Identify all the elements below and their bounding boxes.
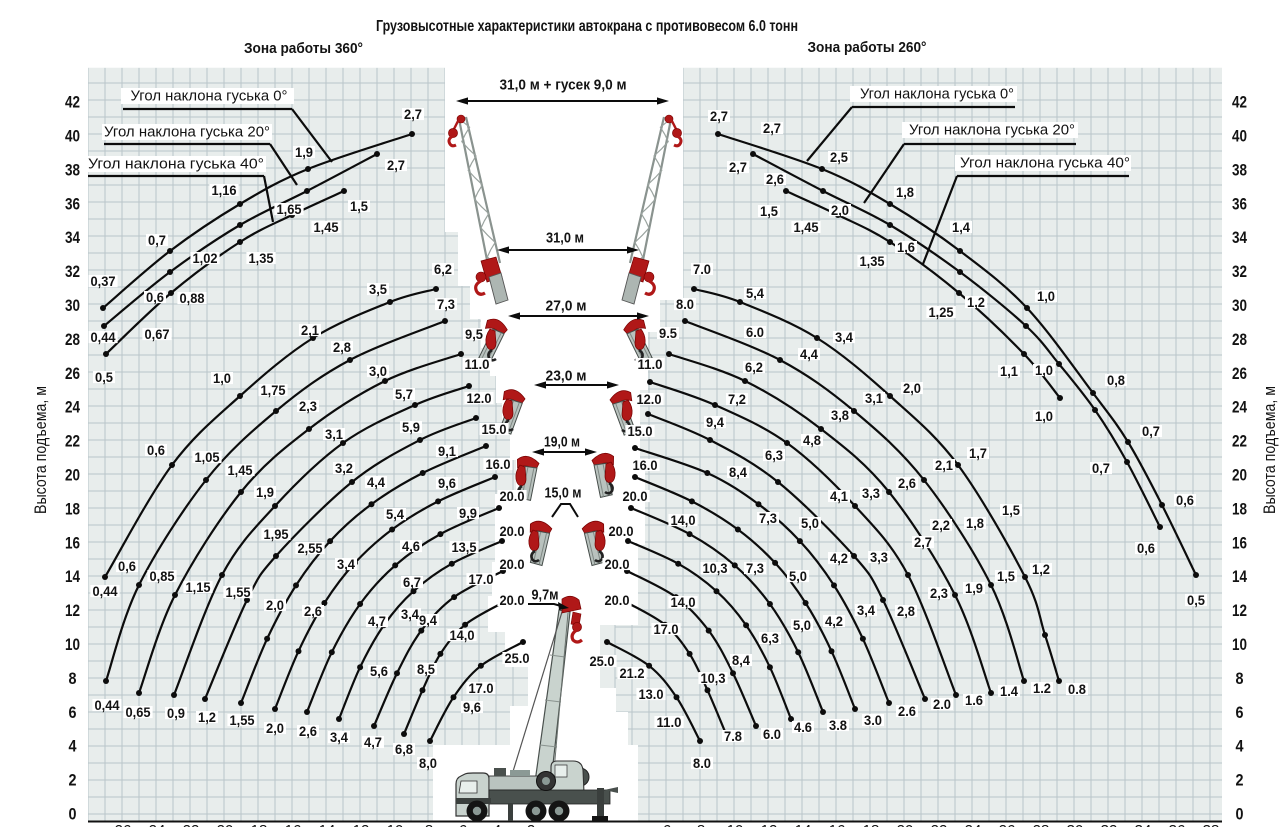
svg-text:20.0: 20.0 xyxy=(623,488,648,504)
svg-text:2,7: 2,7 xyxy=(729,159,747,175)
svg-text:8.0: 8.0 xyxy=(693,755,711,771)
svg-text:9.5: 9.5 xyxy=(659,325,677,341)
svg-text:5,9: 5,9 xyxy=(402,419,420,435)
svg-text:1.4: 1.4 xyxy=(1000,683,1018,699)
svg-text:11.0: 11.0 xyxy=(465,356,490,372)
svg-text:21.2: 21.2 xyxy=(620,665,645,681)
svg-text:15.0: 15.0 xyxy=(628,423,653,439)
svg-text:8,4: 8,4 xyxy=(729,464,747,480)
svg-text:1,2: 1,2 xyxy=(967,294,985,310)
svg-text:1,25: 1,25 xyxy=(929,304,954,320)
svg-text:2,3: 2,3 xyxy=(299,398,317,414)
svg-text:5,4: 5,4 xyxy=(386,506,404,522)
svg-text:32: 32 xyxy=(65,262,80,281)
svg-text:0,88: 0,88 xyxy=(180,290,205,306)
svg-text:Угол наклона гуська 0°: Угол наклона гуська 0° xyxy=(131,88,288,105)
svg-text:4,4: 4,4 xyxy=(367,474,385,490)
svg-text:24: 24 xyxy=(65,398,80,417)
svg-text:12: 12 xyxy=(761,822,778,827)
svg-text:20: 20 xyxy=(65,466,80,485)
svg-text:3,1: 3,1 xyxy=(865,390,883,406)
svg-text:1.6: 1.6 xyxy=(965,692,983,708)
svg-text:32: 32 xyxy=(1101,822,1118,827)
svg-text:20.0: 20.0 xyxy=(500,592,525,608)
svg-text:2,7: 2,7 xyxy=(387,157,405,173)
svg-text:8,0: 8,0 xyxy=(419,755,437,771)
svg-text:1,5: 1,5 xyxy=(760,203,778,219)
svg-text:0,37: 0,37 xyxy=(91,273,116,289)
svg-text:0,5: 0,5 xyxy=(1187,592,1205,608)
svg-text:0,6: 0,6 xyxy=(1176,492,1194,508)
svg-text:20.0: 20.0 xyxy=(500,523,525,539)
svg-text:10: 10 xyxy=(65,635,80,654)
svg-text:2,6: 2,6 xyxy=(304,603,322,619)
svg-text:23,0 м: 23,0 м xyxy=(546,368,587,385)
svg-text:36: 36 xyxy=(1169,822,1186,827)
svg-text:0,44: 0,44 xyxy=(95,697,120,713)
svg-text:6.0: 6.0 xyxy=(763,726,781,742)
svg-text:20.0: 20.0 xyxy=(609,523,634,539)
svg-text:2: 2 xyxy=(1236,771,1244,790)
svg-text:0,44: 0,44 xyxy=(93,583,118,599)
svg-text:8: 8 xyxy=(69,669,77,688)
svg-text:1,55: 1,55 xyxy=(230,712,255,728)
svg-text:11.0: 11.0 xyxy=(657,714,682,730)
svg-text:1,0: 1,0 xyxy=(213,370,231,386)
svg-text:0,7: 0,7 xyxy=(1092,460,1110,476)
svg-text:Угол наклона гуська 40°: Угол наклона гуська 40° xyxy=(88,156,264,173)
svg-text:5,0: 5,0 xyxy=(789,568,807,584)
svg-text:Высота подъема, м: Высота подъема, м xyxy=(32,386,50,514)
svg-text:5,0: 5,0 xyxy=(801,515,819,531)
svg-text:9,6: 9,6 xyxy=(438,475,456,491)
svg-text:10,3: 10,3 xyxy=(703,560,728,576)
svg-text:0,65: 0,65 xyxy=(126,704,151,720)
svg-text:1,5: 1,5 xyxy=(350,198,368,214)
svg-text:12.0: 12.0 xyxy=(637,391,662,407)
svg-text:28: 28 xyxy=(1033,822,1050,827)
svg-text:20.0: 20.0 xyxy=(500,556,525,572)
svg-text:40: 40 xyxy=(65,127,80,146)
svg-text:1,9: 1,9 xyxy=(965,580,983,596)
svg-text:3,4: 3,4 xyxy=(835,329,853,345)
svg-text:1,15: 1,15 xyxy=(186,579,211,595)
svg-text:0,67: 0,67 xyxy=(145,326,170,342)
svg-text:10: 10 xyxy=(387,822,404,827)
svg-text:3,1: 3,1 xyxy=(325,426,343,442)
svg-text:2,7: 2,7 xyxy=(914,534,932,550)
svg-text:24: 24 xyxy=(965,822,982,827)
svg-text:1,1: 1,1 xyxy=(1000,363,1018,379)
svg-text:10: 10 xyxy=(1232,635,1247,654)
svg-text:34: 34 xyxy=(1232,228,1247,247)
svg-text:1,0: 1,0 xyxy=(1035,362,1053,378)
svg-text:5,6: 5,6 xyxy=(370,663,388,679)
svg-text:10,3: 10,3 xyxy=(701,670,726,686)
svg-text:1,45: 1,45 xyxy=(314,219,339,235)
svg-text:6,8: 6,8 xyxy=(395,741,413,757)
svg-text:1,55: 1,55 xyxy=(226,584,251,600)
svg-text:38: 38 xyxy=(65,160,80,179)
svg-text:3,5: 3,5 xyxy=(369,281,387,297)
svg-text:9,6: 9,6 xyxy=(463,699,481,715)
svg-text:2,6: 2,6 xyxy=(299,723,317,739)
svg-text:3,3: 3,3 xyxy=(862,485,880,501)
svg-text:0,6: 0,6 xyxy=(146,289,164,305)
svg-text:9,9: 9,9 xyxy=(459,505,477,521)
svg-text:20: 20 xyxy=(217,822,234,827)
svg-text:24: 24 xyxy=(149,822,166,827)
svg-text:3,4: 3,4 xyxy=(857,602,875,618)
svg-text:1,5: 1,5 xyxy=(1002,502,1020,518)
svg-text:4.6: 4.6 xyxy=(794,719,812,735)
svg-text:6,7: 6,7 xyxy=(403,574,421,590)
svg-text:22: 22 xyxy=(183,822,200,827)
svg-text:2,7: 2,7 xyxy=(763,120,781,136)
svg-text:7.8: 7.8 xyxy=(724,728,742,744)
svg-text:14,0: 14,0 xyxy=(450,627,475,643)
svg-text:0: 0 xyxy=(1236,805,1244,824)
svg-text:2,0: 2,0 xyxy=(903,380,921,396)
svg-text:26: 26 xyxy=(115,822,132,827)
svg-text:2,0: 2,0 xyxy=(266,597,284,613)
svg-text:0: 0 xyxy=(69,805,77,824)
svg-text:9,4: 9,4 xyxy=(706,414,724,430)
svg-text:Грузовысотные характеристики а: Грузовысотные характеристики автокрана с… xyxy=(376,18,798,35)
svg-text:4,7: 4,7 xyxy=(364,734,382,750)
svg-text:2: 2 xyxy=(527,822,535,827)
svg-text:1,8: 1,8 xyxy=(896,184,914,200)
svg-text:1,2: 1,2 xyxy=(1032,561,1050,577)
svg-text:8: 8 xyxy=(425,822,433,827)
svg-text:16.0: 16.0 xyxy=(486,456,511,472)
svg-text:9,1: 9,1 xyxy=(438,443,456,459)
svg-text:30: 30 xyxy=(1067,822,1084,827)
svg-text:1,45: 1,45 xyxy=(228,462,253,478)
svg-text:42: 42 xyxy=(65,93,80,112)
svg-text:3,0: 3,0 xyxy=(369,363,387,379)
svg-text:16: 16 xyxy=(65,533,80,552)
svg-text:6: 6 xyxy=(459,822,467,827)
svg-text:3,4: 3,4 xyxy=(337,556,355,572)
svg-text:34: 34 xyxy=(1135,822,1152,827)
svg-text:2.0: 2.0 xyxy=(933,696,951,712)
svg-text:28: 28 xyxy=(65,330,80,349)
svg-text:14: 14 xyxy=(1232,567,1247,586)
svg-text:24: 24 xyxy=(1232,398,1247,417)
svg-text:1,4: 1,4 xyxy=(952,219,970,235)
svg-text:12.0: 12.0 xyxy=(467,390,492,406)
svg-text:20: 20 xyxy=(1232,466,1247,485)
svg-text:6,2: 6,2 xyxy=(434,261,452,277)
svg-text:3.0: 3.0 xyxy=(864,712,882,728)
svg-text:4,8: 4,8 xyxy=(803,432,821,448)
svg-text:26: 26 xyxy=(1232,364,1247,383)
svg-text:6.0: 6.0 xyxy=(746,324,764,340)
svg-text:16: 16 xyxy=(829,822,846,827)
svg-text:19,0 м: 19,0 м xyxy=(544,434,580,451)
svg-text:8,5: 8,5 xyxy=(417,661,435,677)
svg-text:1,16: 1,16 xyxy=(212,182,237,198)
svg-text:1.2: 1.2 xyxy=(1033,680,1051,696)
svg-text:4: 4 xyxy=(69,737,77,756)
svg-text:1,05: 1,05 xyxy=(195,449,220,465)
svg-text:0,8: 0,8 xyxy=(1107,372,1125,388)
svg-text:13,5: 13,5 xyxy=(452,539,477,555)
svg-text:2,1: 2,1 xyxy=(935,457,953,473)
svg-text:14,0: 14,0 xyxy=(671,512,696,528)
svg-text:6,2: 6,2 xyxy=(745,359,763,375)
svg-text:3,8: 3,8 xyxy=(831,407,849,423)
svg-text:4,1: 4,1 xyxy=(830,488,848,504)
svg-text:42: 42 xyxy=(1232,93,1247,112)
svg-text:2,5: 2,5 xyxy=(830,149,848,165)
svg-text:27,0 м: 27,0 м xyxy=(546,298,587,315)
svg-text:28: 28 xyxy=(1232,330,1247,349)
svg-text:25.0: 25.0 xyxy=(505,650,530,666)
svg-text:5,0: 5,0 xyxy=(793,617,811,633)
svg-text:32: 32 xyxy=(1232,262,1247,281)
svg-text:22: 22 xyxy=(931,822,948,827)
svg-text:2.6: 2.6 xyxy=(898,703,916,719)
svg-text:Высота подъема, м: Высота подъема, м xyxy=(1261,386,1279,514)
svg-text:31,0 м: 31,0 м xyxy=(546,230,584,247)
svg-text:4,6: 4,6 xyxy=(402,538,420,554)
svg-text:14,0: 14,0 xyxy=(671,594,696,610)
svg-text:0,44: 0,44 xyxy=(91,329,116,345)
svg-text:25.0: 25.0 xyxy=(590,653,615,669)
svg-text:4,2: 4,2 xyxy=(825,613,843,629)
svg-text:22: 22 xyxy=(65,432,80,451)
svg-text:4: 4 xyxy=(493,822,501,827)
svg-text:5,4: 5,4 xyxy=(746,285,764,301)
svg-text:2,1: 2,1 xyxy=(301,322,319,338)
svg-text:1,7: 1,7 xyxy=(969,445,987,461)
svg-text:20: 20 xyxy=(897,822,914,827)
svg-text:12: 12 xyxy=(65,601,80,620)
svg-text:0,85: 0,85 xyxy=(150,568,175,584)
svg-text:1,65: 1,65 xyxy=(277,201,302,217)
svg-text:8,4: 8,4 xyxy=(732,652,750,668)
svg-text:18: 18 xyxy=(1232,499,1247,518)
svg-text:1,5: 1,5 xyxy=(997,568,1015,584)
svg-text:16: 16 xyxy=(1232,533,1247,552)
svg-text:2,6: 2,6 xyxy=(898,475,916,491)
svg-text:2,55: 2,55 xyxy=(298,540,323,556)
svg-text:22: 22 xyxy=(1232,432,1247,451)
svg-text:1,35: 1,35 xyxy=(249,250,274,266)
svg-text:31,0 м + гусек 9,0 м: 31,0 м + гусек 9,0 м xyxy=(500,77,627,94)
svg-text:0,6: 0,6 xyxy=(118,558,136,574)
svg-text:2,2: 2,2 xyxy=(932,517,950,533)
svg-text:1,2: 1,2 xyxy=(198,709,216,725)
svg-text:38: 38 xyxy=(1232,160,1247,179)
svg-text:1,45: 1,45 xyxy=(794,219,819,235)
svg-text:3.8: 3.8 xyxy=(829,717,847,733)
svg-text:8: 8 xyxy=(697,822,705,827)
svg-text:30: 30 xyxy=(65,296,80,315)
svg-text:12: 12 xyxy=(1232,601,1247,620)
svg-text:7,3: 7,3 xyxy=(437,296,455,312)
svg-text:2,8: 2,8 xyxy=(897,603,915,619)
svg-text:0,5: 0,5 xyxy=(95,369,113,385)
svg-text:34: 34 xyxy=(65,228,80,247)
svg-text:16.0: 16.0 xyxy=(633,457,658,473)
svg-text:2,0: 2,0 xyxy=(266,720,284,736)
svg-text:0,7: 0,7 xyxy=(148,232,166,248)
svg-text:0,6: 0,6 xyxy=(1137,540,1155,556)
svg-text:Зона работы 260°: Зона работы 260° xyxy=(808,39,927,56)
svg-text:1,9: 1,9 xyxy=(256,484,274,500)
svg-text:4,2: 4,2 xyxy=(830,550,848,566)
svg-text:2: 2 xyxy=(69,771,77,790)
svg-text:6: 6 xyxy=(663,822,671,827)
svg-text:3,2: 3,2 xyxy=(335,460,353,476)
svg-text:20.0: 20.0 xyxy=(605,556,630,572)
svg-text:1,0: 1,0 xyxy=(1035,408,1053,424)
svg-text:10: 10 xyxy=(727,822,744,827)
svg-text:Угол наклона гуська 40°: Угол наклона гуська 40° xyxy=(960,155,1130,172)
svg-text:26: 26 xyxy=(65,364,80,383)
svg-text:1,95: 1,95 xyxy=(264,526,289,542)
svg-text:12: 12 xyxy=(353,822,370,827)
svg-text:6: 6 xyxy=(1236,703,1244,722)
svg-text:8: 8 xyxy=(1236,669,1244,688)
svg-text:13.0: 13.0 xyxy=(639,686,664,702)
svg-text:0.8: 0.8 xyxy=(1068,681,1086,697)
svg-text:1,02: 1,02 xyxy=(193,250,218,266)
svg-text:1,6: 1,6 xyxy=(897,239,915,255)
svg-text:Угол наклона гуська 20°: Угол наклона гуська 20° xyxy=(104,124,270,141)
svg-text:7,3: 7,3 xyxy=(746,560,764,576)
svg-text:26: 26 xyxy=(999,822,1016,827)
svg-text:11.0: 11.0 xyxy=(638,356,663,372)
svg-text:14: 14 xyxy=(319,822,336,827)
svg-text:4,7: 4,7 xyxy=(368,613,386,629)
svg-text:3,4: 3,4 xyxy=(401,606,419,622)
svg-text:6,3: 6,3 xyxy=(765,447,783,463)
svg-text:2,0: 2,0 xyxy=(831,202,849,218)
svg-text:3,3: 3,3 xyxy=(870,549,888,565)
svg-text:0,6: 0,6 xyxy=(147,442,165,458)
svg-text:3,4: 3,4 xyxy=(330,729,348,745)
svg-text:15.0: 15.0 xyxy=(482,421,507,437)
svg-text:1,9: 1,9 xyxy=(295,144,313,160)
svg-text:15,0 м: 15,0 м xyxy=(545,485,582,502)
svg-text:7,2: 7,2 xyxy=(728,391,746,407)
svg-text:36: 36 xyxy=(1232,194,1247,213)
svg-text:2,3: 2,3 xyxy=(930,585,948,601)
svg-text:14: 14 xyxy=(65,567,80,586)
svg-text:4: 4 xyxy=(1236,737,1244,756)
svg-text:18: 18 xyxy=(65,499,80,518)
svg-text:40: 40 xyxy=(1232,127,1247,146)
svg-text:4,4: 4,4 xyxy=(800,346,818,362)
svg-text:0,9: 0,9 xyxy=(167,705,185,721)
svg-text:36: 36 xyxy=(65,194,80,213)
svg-text:2,8: 2,8 xyxy=(333,339,351,355)
svg-text:20.0: 20.0 xyxy=(605,592,630,608)
svg-text:17.0: 17.0 xyxy=(654,621,679,637)
svg-text:1,0: 1,0 xyxy=(1037,288,1055,304)
svg-text:2,7: 2,7 xyxy=(404,106,422,122)
svg-text:5,7: 5,7 xyxy=(395,386,413,402)
svg-text:18: 18 xyxy=(863,822,880,827)
svg-text:9,4: 9,4 xyxy=(419,612,437,628)
svg-text:Угол наклона гуська 0°: Угол наклона гуська 0° xyxy=(860,86,1014,103)
svg-text:6,3: 6,3 xyxy=(761,630,779,646)
svg-text:38: 38 xyxy=(1203,822,1220,827)
svg-text:2,7: 2,7 xyxy=(710,108,728,124)
svg-text:1,8: 1,8 xyxy=(966,515,984,531)
svg-text:2,6: 2,6 xyxy=(766,171,784,187)
svg-text:17.0: 17.0 xyxy=(469,680,494,696)
svg-text:Зона работы 360°: Зона работы 360° xyxy=(244,40,363,57)
svg-text:30: 30 xyxy=(1232,296,1247,315)
svg-text:9,7м: 9,7м xyxy=(532,587,559,604)
svg-text:7,3: 7,3 xyxy=(759,510,777,526)
svg-text:9,5: 9,5 xyxy=(465,326,483,342)
svg-text:14: 14 xyxy=(795,822,812,827)
svg-text:1,75: 1,75 xyxy=(261,382,286,398)
svg-text:18: 18 xyxy=(251,822,268,827)
svg-text:0,7: 0,7 xyxy=(1142,423,1160,439)
svg-text:6: 6 xyxy=(69,703,77,722)
svg-text:Угол наклона гуська 20°: Угол наклона гуська 20° xyxy=(909,122,1075,139)
svg-text:20.0: 20.0 xyxy=(500,488,525,504)
svg-text:16: 16 xyxy=(285,822,302,827)
svg-text:7.0: 7.0 xyxy=(693,261,711,277)
svg-text:1,35: 1,35 xyxy=(860,253,885,269)
svg-text:17.0: 17.0 xyxy=(469,571,494,587)
svg-text:8.0: 8.0 xyxy=(676,296,694,312)
